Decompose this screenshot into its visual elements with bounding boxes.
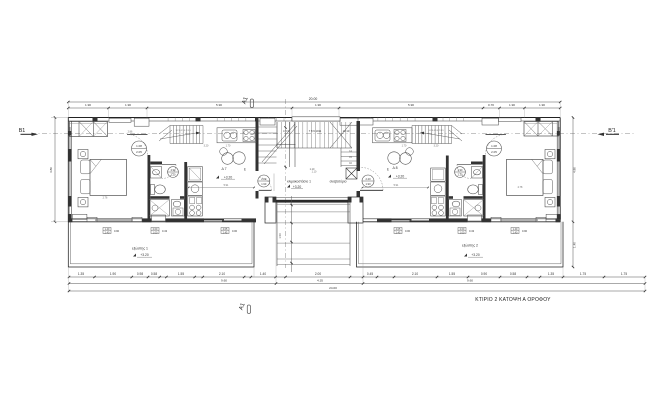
svg-text:1.50: 1.50 xyxy=(278,233,282,239)
svg-text:εξώστης 2: εξώστης 2 xyxy=(462,244,478,248)
svg-text:εξώστης 1: εξώστης 1 xyxy=(132,247,148,251)
svg-text:0.70: 0.70 xyxy=(488,103,494,107)
svg-text:2.90: 2.90 xyxy=(171,169,176,172)
svg-text:2.00: 2.00 xyxy=(315,272,321,276)
svg-text:1.90: 1.90 xyxy=(110,272,116,276)
svg-text:0.98: 0.98 xyxy=(137,272,143,276)
svg-text:0.45: 0.45 xyxy=(367,272,373,276)
svg-text:1.10: 1.10 xyxy=(312,171,317,174)
svg-text:0.58: 0.58 xyxy=(151,272,157,276)
svg-text:αναβατόριο: αναβατόριο xyxy=(330,180,347,184)
svg-text:24.00: 24.00 xyxy=(329,286,337,290)
svg-text:1.90: 1.90 xyxy=(85,103,91,107)
svg-text:2.90: 2.90 xyxy=(458,169,463,172)
svg-text:5.91: 5.91 xyxy=(394,184,399,187)
svg-text:Δ 8: Δ 8 xyxy=(392,166,397,170)
svg-text:4.80: 4.80 xyxy=(573,167,577,173)
svg-text:2.45: 2.45 xyxy=(396,231,401,234)
svg-text:3.20: 3.20 xyxy=(204,145,209,148)
svg-text:1.90: 1.90 xyxy=(509,103,515,107)
svg-text:1.70: 1.70 xyxy=(226,145,231,148)
svg-text:2.20: 2.20 xyxy=(171,174,176,177)
svg-text:1.00: 1.00 xyxy=(460,231,465,234)
svg-text:5.90: 5.90 xyxy=(216,103,222,107)
svg-text:Δ 7: Δ 7 xyxy=(221,167,226,171)
svg-text:2.20: 2.20 xyxy=(261,177,267,181)
svg-text:3.20: 3.20 xyxy=(434,145,439,148)
svg-text:+3.20: +3.20 xyxy=(471,253,480,257)
svg-text:1.90: 1.90 xyxy=(365,182,371,186)
svg-text:5.90: 5.90 xyxy=(408,103,414,107)
svg-text:E: E xyxy=(387,168,389,172)
svg-text:1.55: 1.55 xyxy=(178,272,184,276)
svg-text:0.90: 0.90 xyxy=(114,229,120,233)
svg-text:1.08: 1.08 xyxy=(136,144,142,148)
svg-text:2.86: 2.86 xyxy=(128,131,133,134)
svg-text:1 2 3 4 5 6 7 8 9: 1 2 3 4 5 6 7 8 9 xyxy=(175,130,191,132)
svg-text:2.45: 2.45 xyxy=(223,231,228,234)
svg-text:1.75: 1.75 xyxy=(580,272,586,276)
svg-text:0.43: 0.43 xyxy=(469,229,475,233)
svg-text:0.58: 0.58 xyxy=(510,272,516,276)
svg-text:2.78: 2.78 xyxy=(518,186,523,189)
svg-text:9.60: 9.60 xyxy=(221,279,227,283)
svg-text:1.00: 1.00 xyxy=(153,231,158,234)
svg-text:1.08: 1.08 xyxy=(491,144,497,148)
svg-text:0.90: 0.90 xyxy=(522,229,528,233)
svg-text:2.20: 2.20 xyxy=(458,174,463,177)
svg-text:1.75: 1.75 xyxy=(621,272,627,276)
svg-text:1.90: 1.90 xyxy=(261,182,267,186)
svg-text:4.80: 4.80 xyxy=(49,167,53,173)
svg-text:E: E xyxy=(244,168,246,172)
svg-text:2.40: 2.40 xyxy=(105,231,110,234)
svg-text:4.35: 4.35 xyxy=(317,279,323,283)
svg-text:1.40: 1.40 xyxy=(573,242,577,248)
svg-text:0.90: 0.90 xyxy=(481,272,487,276)
svg-text:B'1: B'1 xyxy=(608,128,616,134)
svg-text:2.76: 2.76 xyxy=(103,197,108,200)
svg-text:4 5 6: 4 5 6 xyxy=(283,129,289,133)
svg-text:+3.20: +3.20 xyxy=(224,176,233,180)
svg-text:9.60: 9.60 xyxy=(467,279,473,283)
svg-text:κλιμακοστάσιο 1: κλιμακοστάσιο 1 xyxy=(287,180,311,184)
svg-text:1.70: 1.70 xyxy=(402,145,407,148)
svg-text:1 2 3 4 5 6 7 8 9: 1 2 3 4 5 6 7 8 9 xyxy=(428,130,444,132)
svg-text:1.35: 1.35 xyxy=(78,272,84,276)
svg-text:+3.20: +3.20 xyxy=(396,175,405,179)
svg-text:ΚΤΙΡΙΟ 2 ΚΑΤΟΨΗ Α ΟΡΟΦΟΥ: ΚΤΙΡΙΟ 2 ΚΑΤΟΨΗ Α ΟΡΟΦΟΥ xyxy=(475,297,551,303)
svg-text:2.05: 2.05 xyxy=(491,150,497,154)
svg-text:0.43: 0.43 xyxy=(162,229,168,233)
svg-text:1.90: 1.90 xyxy=(125,103,131,107)
svg-text:5.91: 5.91 xyxy=(224,184,229,187)
svg-text:1.35: 1.35 xyxy=(548,272,554,276)
svg-text:1.90: 1.90 xyxy=(315,103,321,107)
svg-text:1.90: 1.90 xyxy=(539,103,545,107)
svg-text:2.20: 2.20 xyxy=(365,177,371,181)
svg-text:0.00: 0.00 xyxy=(405,229,411,233)
svg-text:+3.20: +3.20 xyxy=(140,253,149,257)
svg-text:20.00: 20.00 xyxy=(309,97,318,101)
svg-text:12 13: 12 13 xyxy=(343,129,350,133)
svg-text:7 8 9 1011: 7 8 9 1011 xyxy=(309,129,322,133)
svg-text:B1: B1 xyxy=(19,128,26,134)
svg-text:0.00: 0.00 xyxy=(232,229,238,233)
svg-text:1.55: 1.55 xyxy=(449,272,455,276)
svg-text:2.40: 2.40 xyxy=(513,231,518,234)
svg-text:2.10: 2.10 xyxy=(219,272,225,276)
svg-text:2.05: 2.05 xyxy=(136,150,142,154)
svg-text:1.40: 1.40 xyxy=(260,272,266,276)
svg-text:2.10: 2.10 xyxy=(412,272,418,276)
